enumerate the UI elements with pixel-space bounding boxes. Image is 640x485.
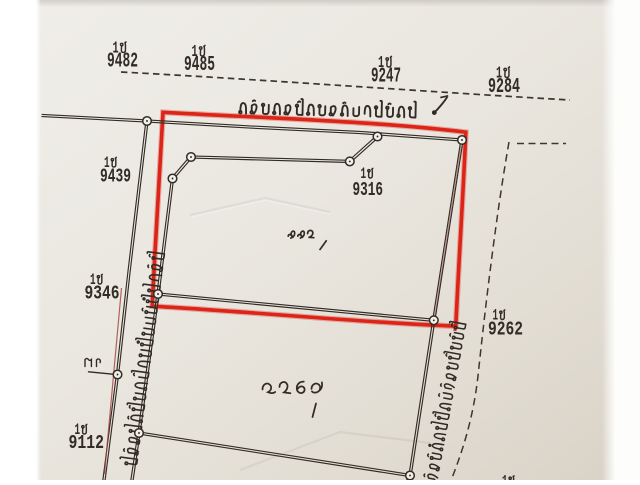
- svg-text:9439: 9439: [100, 166, 131, 188]
- svg-text:9262: 9262: [488, 319, 523, 341]
- svg-text:9485: 9485: [184, 54, 215, 77]
- svg-text:9316: 9316: [353, 179, 384, 201]
- svg-text:9482: 9482: [107, 51, 138, 74]
- svg-text:9247: 9247: [371, 66, 401, 89]
- svg-text:9346: 9346: [85, 283, 120, 305]
- svg-text:1: 1: [502, 473, 508, 481]
- svg-text:9112: 9112: [69, 432, 105, 454]
- svg-text:9284: 9284: [488, 76, 520, 99]
